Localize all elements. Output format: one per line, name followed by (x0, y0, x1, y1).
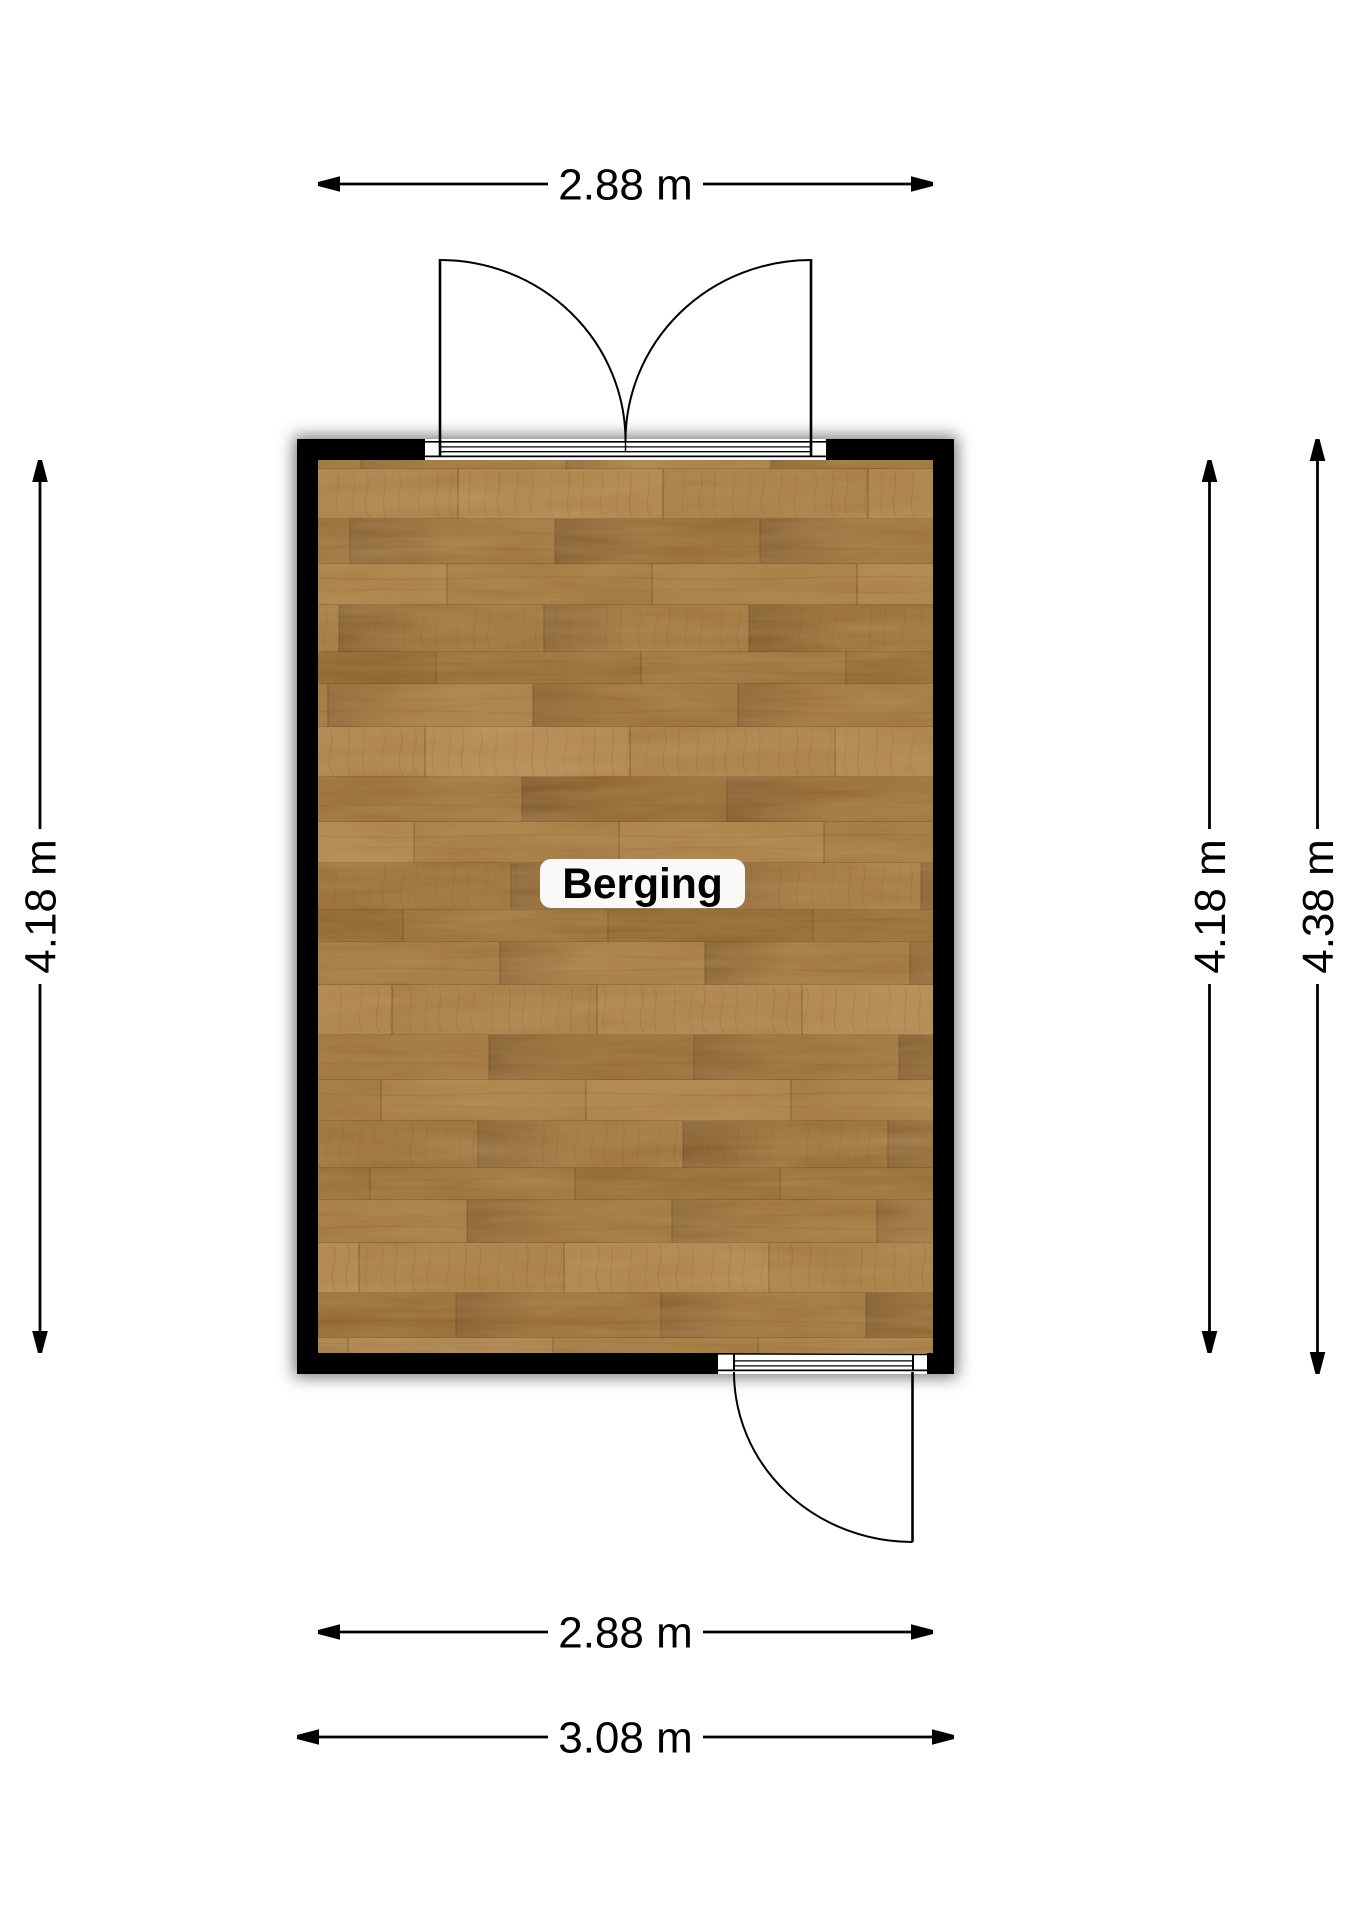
svg-text:2.88 m: 2.88 m (558, 1609, 693, 1658)
svg-text:3.08 m: 3.08 m (558, 1714, 693, 1763)
svg-text:4.18 m: 4.18 m (17, 839, 66, 974)
svg-text:4.38 m: 4.38 m (1294, 839, 1343, 974)
svg-text:Berging: Berging (562, 861, 723, 908)
svg-text:4.18 m: 4.18 m (1186, 839, 1235, 974)
svg-text:2.88 m: 2.88 m (558, 161, 693, 210)
